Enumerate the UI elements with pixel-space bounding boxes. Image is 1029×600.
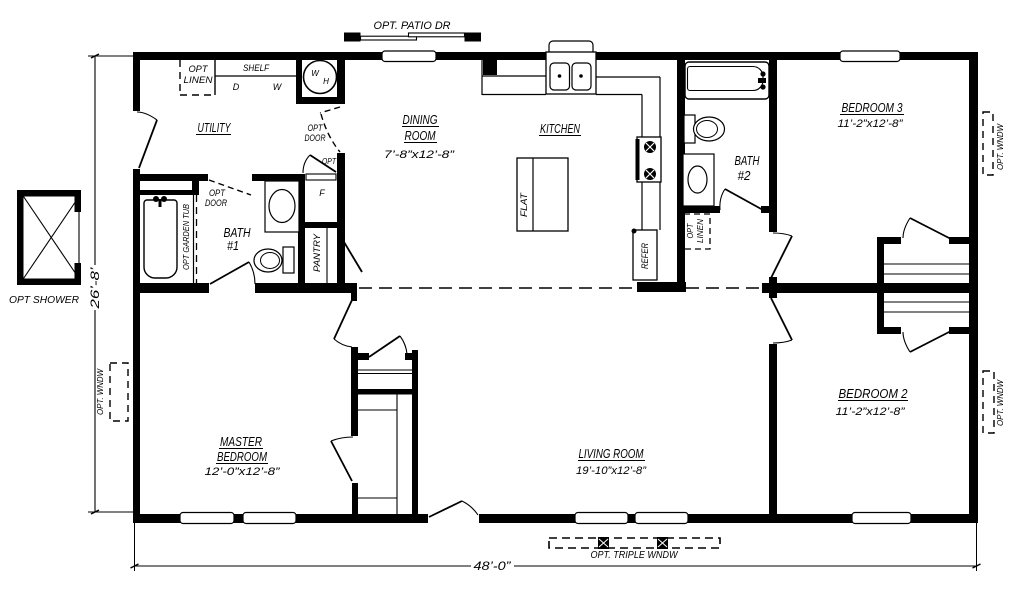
svg-text:OPT. TRIPLE WNDW: OPT. TRIPLE WNDW: [591, 550, 679, 561]
svg-text:D: D: [233, 82, 240, 92]
svg-text:BEDROOM 3: BEDROOM 3: [842, 100, 904, 115]
svg-text:LINEN: LINEN: [184, 75, 214, 85]
svg-text:#2: #2: [738, 168, 752, 183]
svg-text:F: F: [319, 188, 325, 198]
svg-text:11’-2”x12’-8”: 11’-2”x12’-8”: [838, 118, 904, 130]
svg-text:7’-8”x12’-8”: 7’-8”x12’-8”: [384, 149, 456, 161]
svg-text:DINING: DINING: [403, 112, 438, 127]
svg-text:11’-2”x12’-8”: 11’-2”x12’-8”: [836, 406, 907, 418]
svg-text:BEDROOM: BEDROOM: [217, 449, 267, 464]
svg-text:H: H: [323, 77, 329, 86]
svg-text:OPT. WNDW: OPT. WNDW: [96, 368, 105, 415]
svg-text:LIVING ROOM: LIVING ROOM: [579, 446, 644, 461]
svg-text:OPT GARDEN TUB: OPT GARDEN TUB: [182, 203, 191, 270]
svg-text:PANTRY: PANTRY: [312, 233, 322, 272]
svg-text:19’-10”x12’-8”: 19’-10”x12’-8”: [576, 465, 647, 477]
svg-text:12’-0”x12’-8”: 12’-0”x12’-8”: [205, 466, 282, 478]
svg-text:48’-0”: 48’-0”: [474, 561, 512, 573]
svg-text:26’-8’: 26’-8’: [90, 267, 102, 310]
svg-text:#1: #1: [227, 238, 239, 253]
svg-text:BATH: BATH: [735, 153, 760, 168]
svg-text:BEDROOM 2: BEDROOM 2: [839, 386, 909, 401]
svg-text:ROOM: ROOM: [405, 128, 436, 143]
svg-text:LINEN: LINEN: [696, 219, 705, 243]
svg-text:OPT: OPT: [322, 157, 337, 166]
svg-text:OPT: OPT: [686, 222, 695, 238]
svg-text:MASTER: MASTER: [220, 434, 262, 449]
svg-text:DOOR: DOOR: [205, 198, 227, 208]
svg-text:SHELF: SHELF: [243, 63, 269, 73]
svg-text:DOOR: DOOR: [305, 133, 326, 143]
svg-text:FLAT: FLAT: [519, 191, 529, 217]
svg-text:KITCHEN: KITCHEN: [540, 121, 580, 136]
svg-text:OPT: OPT: [189, 64, 210, 74]
svg-text:OPT. PATIO DR: OPT. PATIO DR: [374, 20, 451, 32]
svg-text:UTILITY: UTILITY: [198, 120, 232, 135]
svg-text:OPT: OPT: [209, 188, 226, 198]
svg-text:OPT. WNDW: OPT. WNDW: [996, 123, 1005, 170]
svg-text:OPT: OPT: [308, 123, 324, 133]
svg-text:OPT SHOWER: OPT SHOWER: [9, 294, 79, 306]
svg-text:OPT. WNDW: OPT. WNDW: [996, 379, 1005, 426]
svg-text:REFER: REFER: [640, 243, 650, 269]
